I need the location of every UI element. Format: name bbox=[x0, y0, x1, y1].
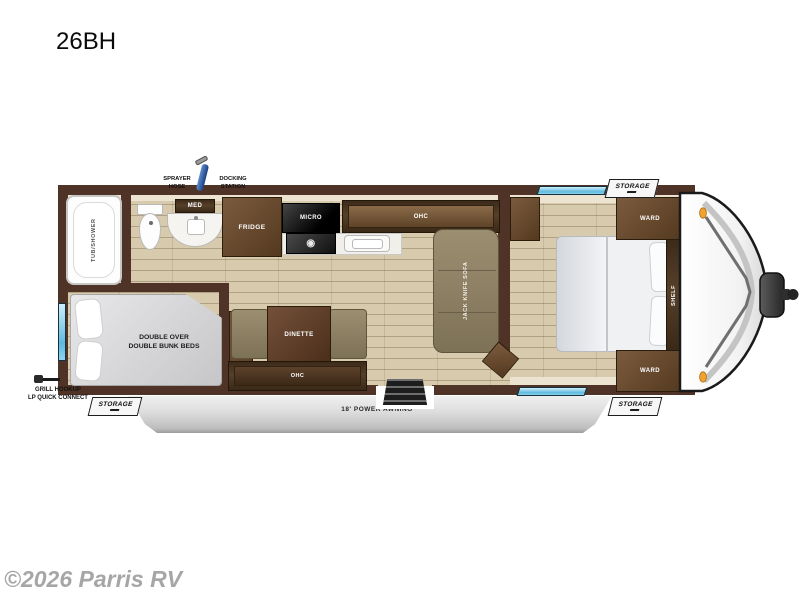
burner-icon: ◉ bbox=[287, 234, 335, 253]
bedroom-corner-cabinet bbox=[510, 197, 540, 241]
dinette-bench-right bbox=[329, 309, 367, 359]
bed-blanket-foot bbox=[556, 236, 608, 352]
med-cabinet: MED bbox=[175, 199, 215, 213]
grill-hookup-line1: GRILL HOOKUP bbox=[0, 386, 116, 394]
wardrobe-bottom-label: WARD bbox=[617, 351, 683, 391]
bunk-pillow-bottom bbox=[74, 340, 103, 382]
marker-light-bottom bbox=[700, 372, 707, 382]
microwave-label: MICRO bbox=[283, 204, 339, 232]
jack-knife-sofa: JACK KNIFE SOFA bbox=[433, 229, 499, 353]
sprayer-hose-label: SPRAYER HOSE bbox=[156, 176, 198, 192]
front-cap-and-hitch bbox=[676, 183, 800, 401]
hitch-ball bbox=[788, 289, 799, 300]
grill-hookup-stem bbox=[42, 378, 60, 381]
toilet-flush bbox=[149, 221, 153, 225]
med-cabinet-label: MED bbox=[176, 200, 214, 212]
bunk-label: DOUBLE OVER DOUBLE BUNK BEDS bbox=[108, 333, 220, 351]
kitchen-ohc-door: OHC bbox=[348, 205, 494, 228]
docking-station-label: DOCKING STATION bbox=[210, 176, 256, 192]
wall-shower-right bbox=[121, 185, 131, 292]
bedroom-window-bottom bbox=[517, 387, 588, 396]
kitchen-sink bbox=[344, 235, 390, 252]
entry-steps bbox=[383, 379, 427, 405]
dinette-label: DINETTE bbox=[268, 307, 330, 361]
dinette-overhead-cabinet: OHC bbox=[228, 361, 367, 391]
fridge-label: FRIDGE bbox=[223, 198, 281, 256]
bunk-pillow-top bbox=[74, 298, 104, 340]
grill-hookup-icon bbox=[34, 374, 62, 384]
tub-shower-label: TUB/SHOWER bbox=[68, 197, 120, 283]
wardrobe-top: WARD bbox=[616, 197, 684, 240]
stove: ◉ bbox=[286, 233, 336, 254]
dinette-ohc-label: OHC bbox=[235, 367, 360, 385]
tub-shower: TUB/SHOWER bbox=[66, 195, 122, 285]
grill-hookup-label: GRILL HOOKUP LP QUICK CONNECT bbox=[0, 386, 116, 402]
dinette-table: DINETTE bbox=[267, 306, 331, 362]
sprayer-hose-line1: SPRAYER bbox=[156, 176, 198, 184]
docking-station-line1: DOCKING bbox=[210, 176, 256, 184]
fridge: FRIDGE bbox=[222, 197, 282, 257]
storage-tag-front-bottom: STORAGE bbox=[608, 397, 663, 416]
watermark: ©2026 Parris RV bbox=[4, 566, 182, 593]
bath-sink bbox=[187, 219, 205, 235]
kitchen-ohc-label: OHC bbox=[349, 206, 493, 227]
wardrobe-top-label: WARD bbox=[617, 198, 683, 239]
rv-floorplan-image: 26BH ©2026 Parris RV 18' POWER AWNING TU… bbox=[0, 0, 800, 600]
marker-light-top bbox=[700, 208, 707, 218]
faucet-icon bbox=[194, 216, 198, 220]
dinette-ohc-door: OHC bbox=[234, 366, 361, 386]
sofa-label: JACK KNIFE SOFA bbox=[434, 230, 498, 352]
wardrobe-bottom: WARD bbox=[616, 350, 684, 392]
microwave: MICRO bbox=[282, 203, 340, 233]
dinette-bench-left bbox=[231, 309, 269, 359]
propane-tank-cover bbox=[760, 273, 784, 317]
kitchen-sink-basin bbox=[352, 239, 383, 249]
grill-hookup-line2: LP QUICK CONNECT bbox=[0, 394, 116, 402]
docking-station-line2: STATION bbox=[210, 184, 256, 192]
page-title: 26BH bbox=[56, 28, 116, 56]
bedroom-window-top bbox=[537, 186, 608, 195]
storage-tag-front-top: STORAGE bbox=[605, 179, 660, 198]
bunk-label-line1: DOUBLE OVER bbox=[108, 333, 220, 342]
bunk-window-left bbox=[58, 303, 66, 361]
sprayer-hose-line2: HOSE bbox=[156, 184, 198, 192]
grill-hookup-knob bbox=[34, 375, 43, 383]
bunk-label-line2: DOUBLE BUNK BEDS bbox=[108, 342, 220, 351]
